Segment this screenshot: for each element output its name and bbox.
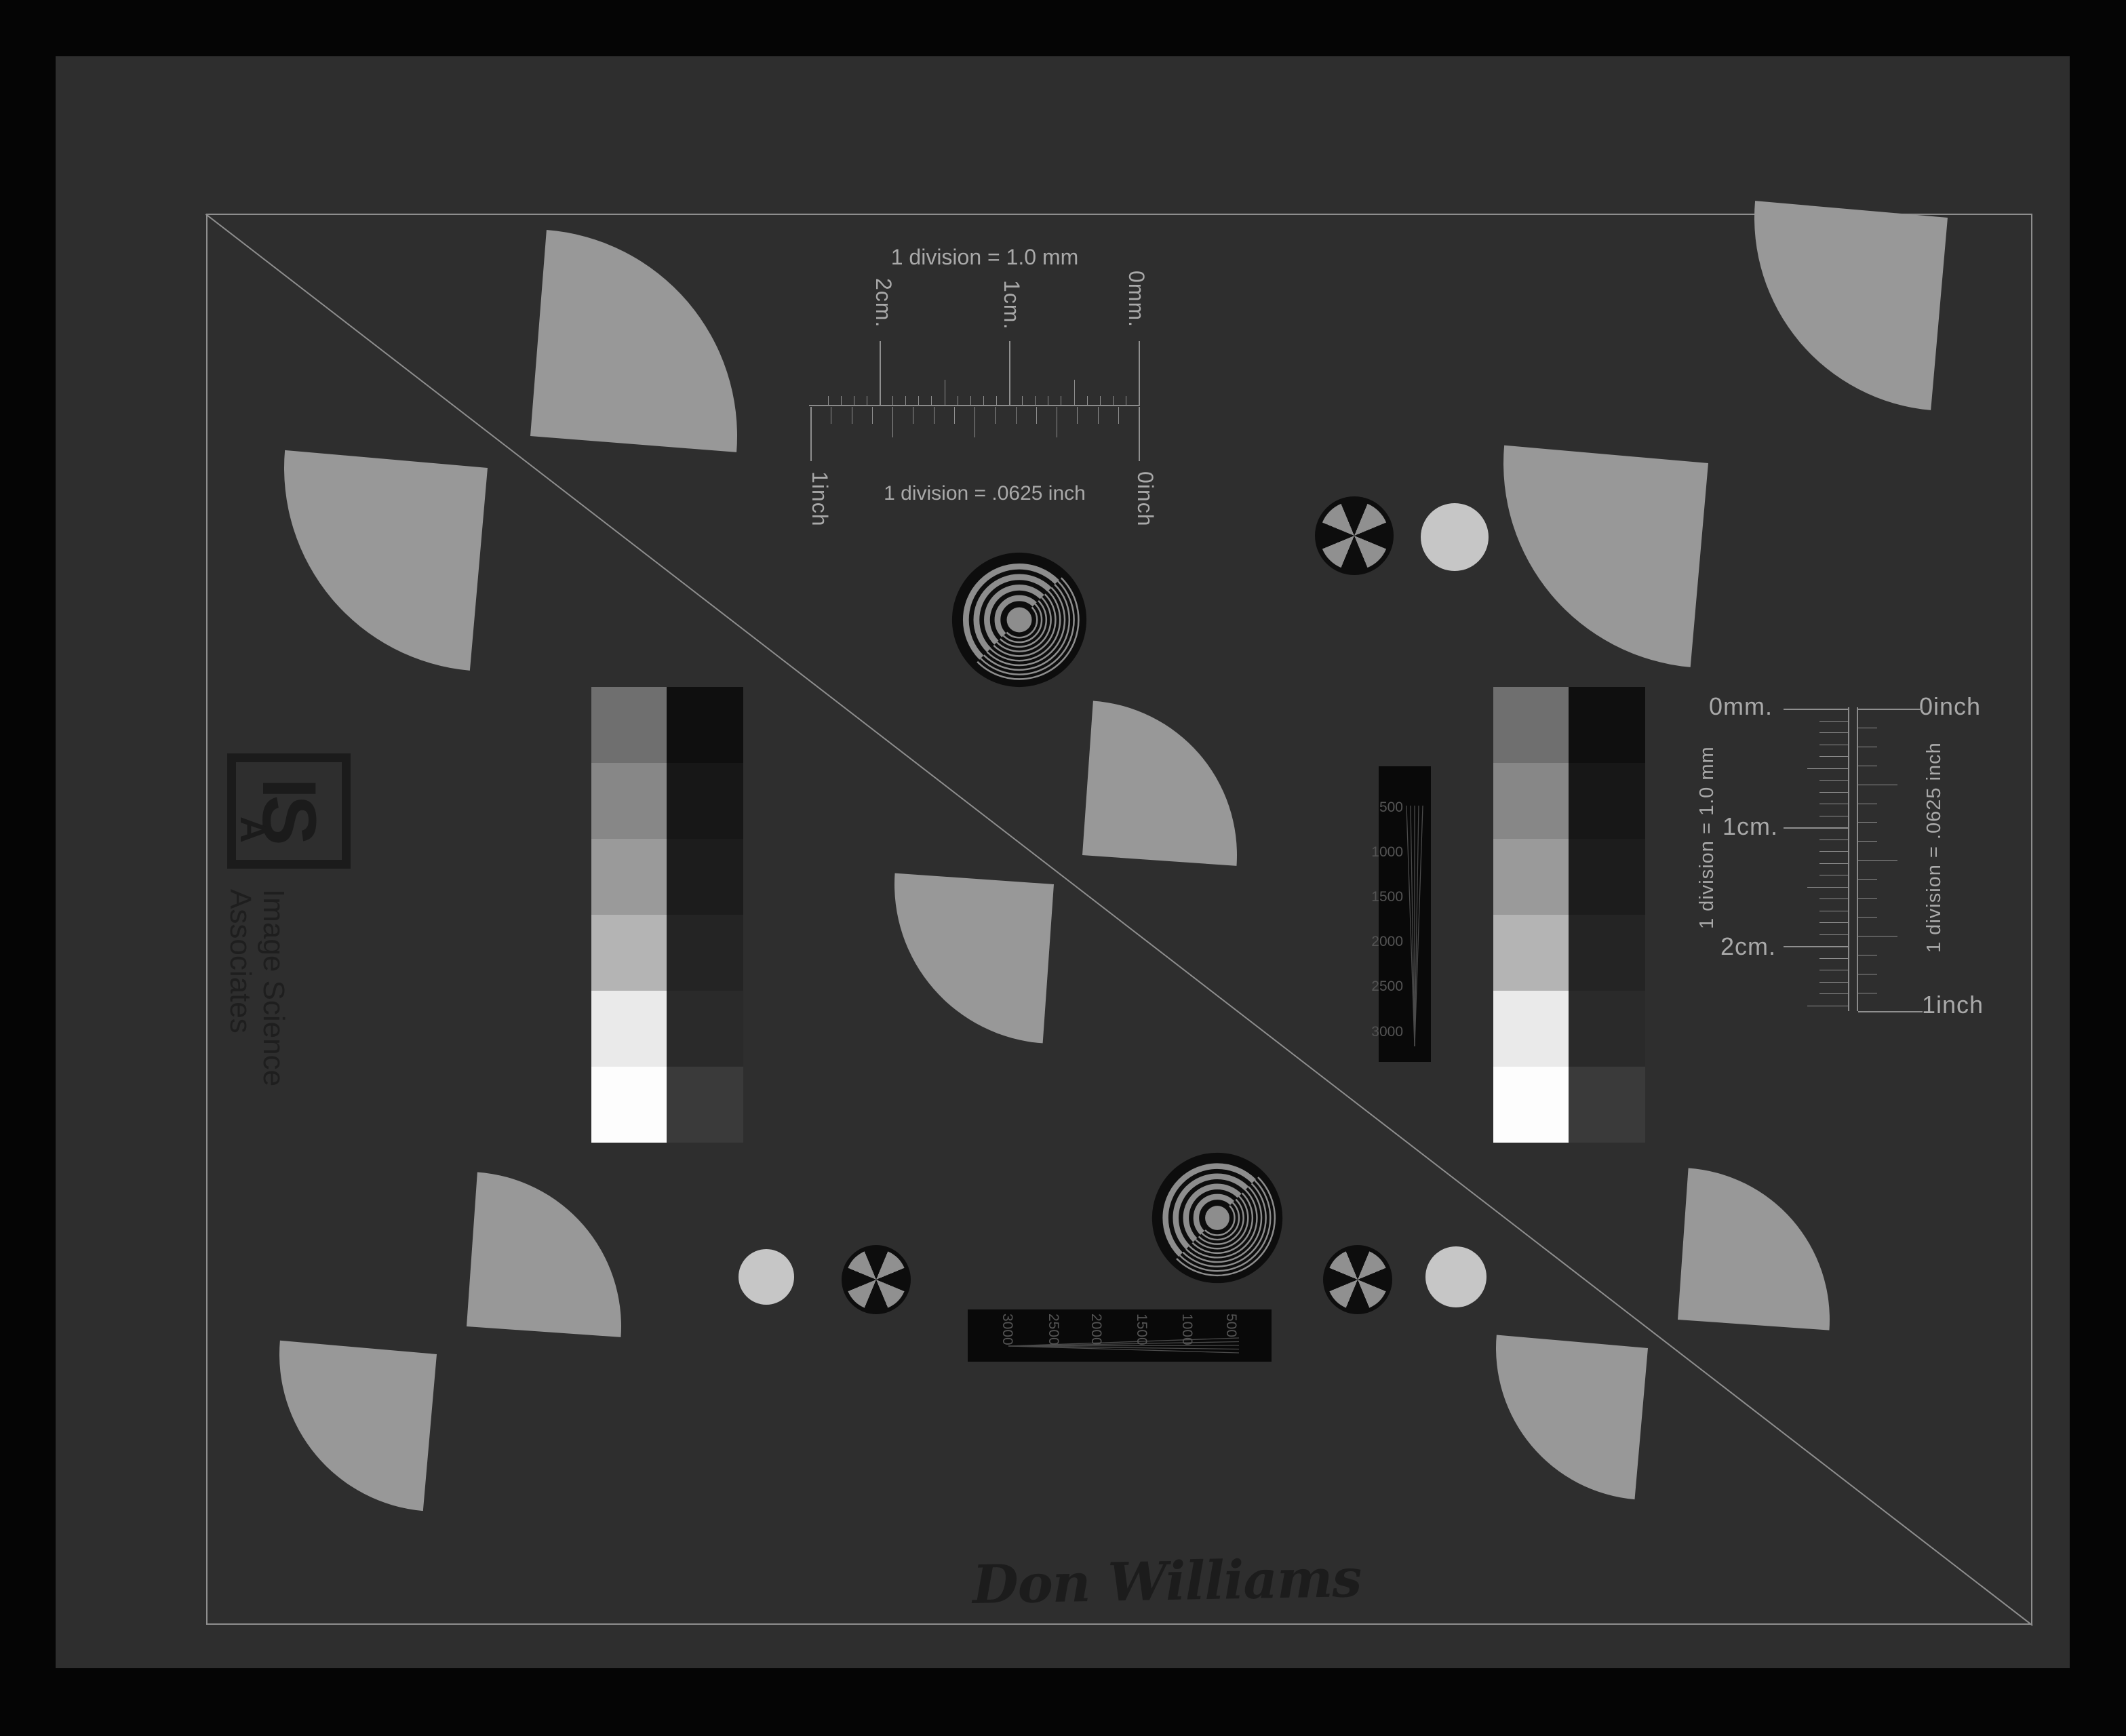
ruler-tick-inch [1858,898,1877,899]
ruler-tick-mm [1061,396,1061,405]
ruler-tick-inch [1077,407,1078,424]
ruler-tick-mm [1009,341,1010,405]
ruler-tick-mm [1819,911,1848,911]
ruler-tick-mm [918,396,919,405]
resolution-wedge-label: 2500 [1045,1314,1061,1345]
resolution-wedge-label: 1000 [1179,1314,1195,1345]
isa-logo-name-line2: Associates [224,889,257,1099]
ruler-tick-inch [1858,917,1877,918]
grayscale-step [591,991,667,1067]
grayscale-step [1493,839,1569,915]
ruler-tick-mm [841,396,842,405]
right-ruler-label-1cm: 1cm. [1723,812,1778,841]
gray-circle-patch [1421,503,1489,571]
top-ruler-label-0mm: 0mm. [1124,271,1149,328]
ruler-tick-mm [1819,792,1848,793]
ruler-tick-inch [1858,936,1897,936]
right-ruler-label-1inch: 1inch [1922,991,1984,1019]
ruler-tick-mm [1819,934,1848,935]
ruler-tick-mm [828,396,829,405]
resolution-wedge-label: 500 [1223,1314,1239,1337]
isa-logo-name-line1: Image Science [257,889,290,1099]
ruler-tick-mm [1819,958,1848,959]
ruler-tick-mm [1819,851,1848,852]
ruler-tick-mm [1784,709,1848,710]
ruler-tick-inch [1858,841,1877,842]
ruler-tick-inch [1858,766,1877,766]
ruler-tick-mm [1807,1006,1848,1006]
ruler-tick-inch [872,407,873,424]
ruler-tick-mm [1819,863,1848,864]
ruler-tick-mm [1819,780,1848,781]
ruler-tick-mm [1048,396,1048,405]
ruler-tick-inch [852,407,852,424]
top-ruler-label-1inch: 1inch [807,471,832,527]
ruler-tick-mm [996,396,997,405]
ruler-tick-inch [1036,407,1037,424]
ruler-tick-mm [931,396,932,405]
grayscale-step [1493,1067,1569,1143]
grayscale-step [667,991,743,1067]
sector-star-core [1327,1249,1388,1310]
ruler-tick-inch [1858,709,1923,710]
ruler-tick-inch [1016,407,1017,424]
ruler-tick-mm [1087,396,1088,405]
ruler-tick-mm [983,396,984,405]
ruler-tick-mm [1819,721,1848,722]
ruler-tick-mm [1784,946,1848,947]
ruler-tick-mm [1035,396,1036,405]
ruler-tick-mm [1113,396,1114,405]
resolution-wedge-label: 3000 [1361,1024,1403,1040]
ruler-tick-mm [970,396,971,405]
right-ruler-label-0mm: 0mm. [1709,692,1773,721]
gray-circle-patch [739,1249,794,1305]
signature: Don Williams [972,1547,1362,1616]
grayscale-step [591,915,667,991]
ruler-tick-inch [1858,785,1897,785]
ruler-tick-mm [892,396,893,405]
ruler-tick-mm [854,396,854,405]
grayscale-step [667,1067,743,1143]
top-ruler-label-2cm: 2cm. [871,278,896,328]
sector-star-target [842,1245,911,1314]
calibration-target-card: 1 division = 1.0 mm 2cm. 1cm. 0mm. 1 div… [56,56,2070,1668]
ruler-tick-mm [958,396,958,405]
ruler-tick-inch [1858,860,1897,861]
grayscale-step [1493,687,1569,763]
sector-star-target [1323,1245,1392,1314]
grayscale-step [1569,991,1645,1067]
gray-circle-patch [1425,1246,1487,1307]
ruler-tick-inch [995,407,996,424]
sector-star-core [1320,501,1389,570]
top-ruler-baseline [809,405,1140,406]
ruler-tick-mm [1022,396,1023,405]
resolution-wedge-label: 2000 [1361,934,1403,950]
isa-logo-name: Image Science Associates [222,889,290,1099]
sector-star-core [846,1249,907,1310]
ruler-tick-mm [1100,396,1101,405]
grayscale-step [591,687,667,763]
ruler-tick-mm [945,380,945,405]
top-ruler-inch-title: 1 division = .0625 inch [829,482,1141,505]
ruler-tick-inch [892,407,893,437]
isa-logo-initials: IS A [255,778,323,842]
ruler-tick-mm [1807,768,1848,769]
ruler-tick-mm [1807,887,1848,888]
right-ruler-inch-title: 1 division = .0625 inch [1923,742,1946,953]
grayscale-step [1493,763,1569,839]
ruler-tick-mm [1819,756,1848,757]
top-ruler-label-0inch: 0inch [1133,471,1158,527]
ruler-tick-inch [1118,407,1119,424]
ruler-tick-inch [810,407,812,461]
ruler-tick-mm [1819,982,1848,983]
ruler-tick-mm [880,341,881,405]
top-ruler-mm-title: 1 division = 1.0 mm [829,245,1141,270]
grayscale-step [1569,687,1645,763]
ruler-tick-mm [1819,816,1848,816]
ruler-tick-mm [1139,341,1140,405]
sector-star-target [1315,496,1394,575]
concentric-ring-target [950,551,1088,689]
ruler-tick-mm [867,396,867,405]
ruler-tick-inch [1858,728,1877,728]
ruler-tick-inch [1858,822,1877,823]
ruler-tick-mm [1819,840,1848,840]
ruler-tick-inch [954,407,955,424]
resolution-wedge-label: 2000 [1088,1314,1104,1345]
grayscale-step [667,763,743,839]
grayscale-step [591,839,667,915]
ruler-tick-inch [975,407,975,437]
ruler-tick-mm [1819,993,1848,994]
ruler-tick-inch [1098,407,1099,424]
right-ruler-mm-line [1848,707,1849,1011]
isa-logo-box: IS A [227,753,351,869]
ruler-tick-inch [1858,804,1877,804]
resolution-wedge-label: 2500 [1361,979,1403,995]
resolution-wedge-label: 3000 [999,1314,1015,1345]
grayscale-step [1569,915,1645,991]
ruler-tick-inch [1858,1011,1923,1012]
ruler-tick-mm [1819,732,1848,733]
ruler-tick-inch [1858,879,1877,880]
grayscale-step [667,915,743,991]
ruler-tick-mm [1819,922,1848,923]
resolution-wedge-label: 1000 [1361,844,1403,861]
grayscale-step [1569,763,1645,839]
ruler-tick-inch [1057,407,1057,437]
ruler-tick-inch [1858,747,1877,747]
grayscale-step [667,687,743,763]
right-ruler-mm-title: 1 division = 1.0 mm [1696,746,1718,929]
ruler-tick-mm [1819,970,1848,970]
ruler-tick-mm [1819,875,1848,875]
ruler-tick-inch [1139,407,1140,461]
grayscale-step [1569,839,1645,915]
ruler-tick-mm [1784,827,1848,829]
scan-background: 1 division = 1.0 mm 2cm. 1cm. 0mm. 1 div… [0,0,2126,1736]
isa-logo-a: A [232,816,274,843]
grayscale-step [1493,991,1569,1067]
ruler-tick-inch [1858,955,1877,955]
ruler-tick-inch [1858,974,1877,974]
grayscale-step [591,763,667,839]
grayscale-step [1493,915,1569,991]
right-ruler-label-2cm: 2cm. [1720,932,1776,961]
ruler-tick-mm [1126,396,1126,405]
resolution-wedge-label: 1500 [1361,889,1403,905]
resolution-wedge-label: 500 [1361,800,1403,816]
ruler-tick-mm [1819,899,1848,899]
ruler-tick-inch [934,407,934,424]
right-ruler-label-0inch: 0inch [1919,692,1981,721]
grayscale-step [591,1067,667,1143]
grayscale-step [1569,1067,1645,1143]
ruler-tick-inch [1858,993,1877,993]
concentric-ring-target [1150,1151,1284,1285]
ruler-tick-mm [1819,804,1848,804]
top-ruler-label-1cm: 1cm. [999,280,1024,330]
resolution-wedge-label: 1500 [1133,1314,1149,1345]
ruler-tick-mm [1819,745,1848,745]
grayscale-step [667,839,743,915]
ruler-tick-mm [905,396,906,405]
ruler-tick-inch [913,407,913,424]
ruler-tick-inch [831,407,831,424]
right-ruler-inch-line [1857,707,1858,1011]
ruler-tick-mm [1074,380,1075,405]
